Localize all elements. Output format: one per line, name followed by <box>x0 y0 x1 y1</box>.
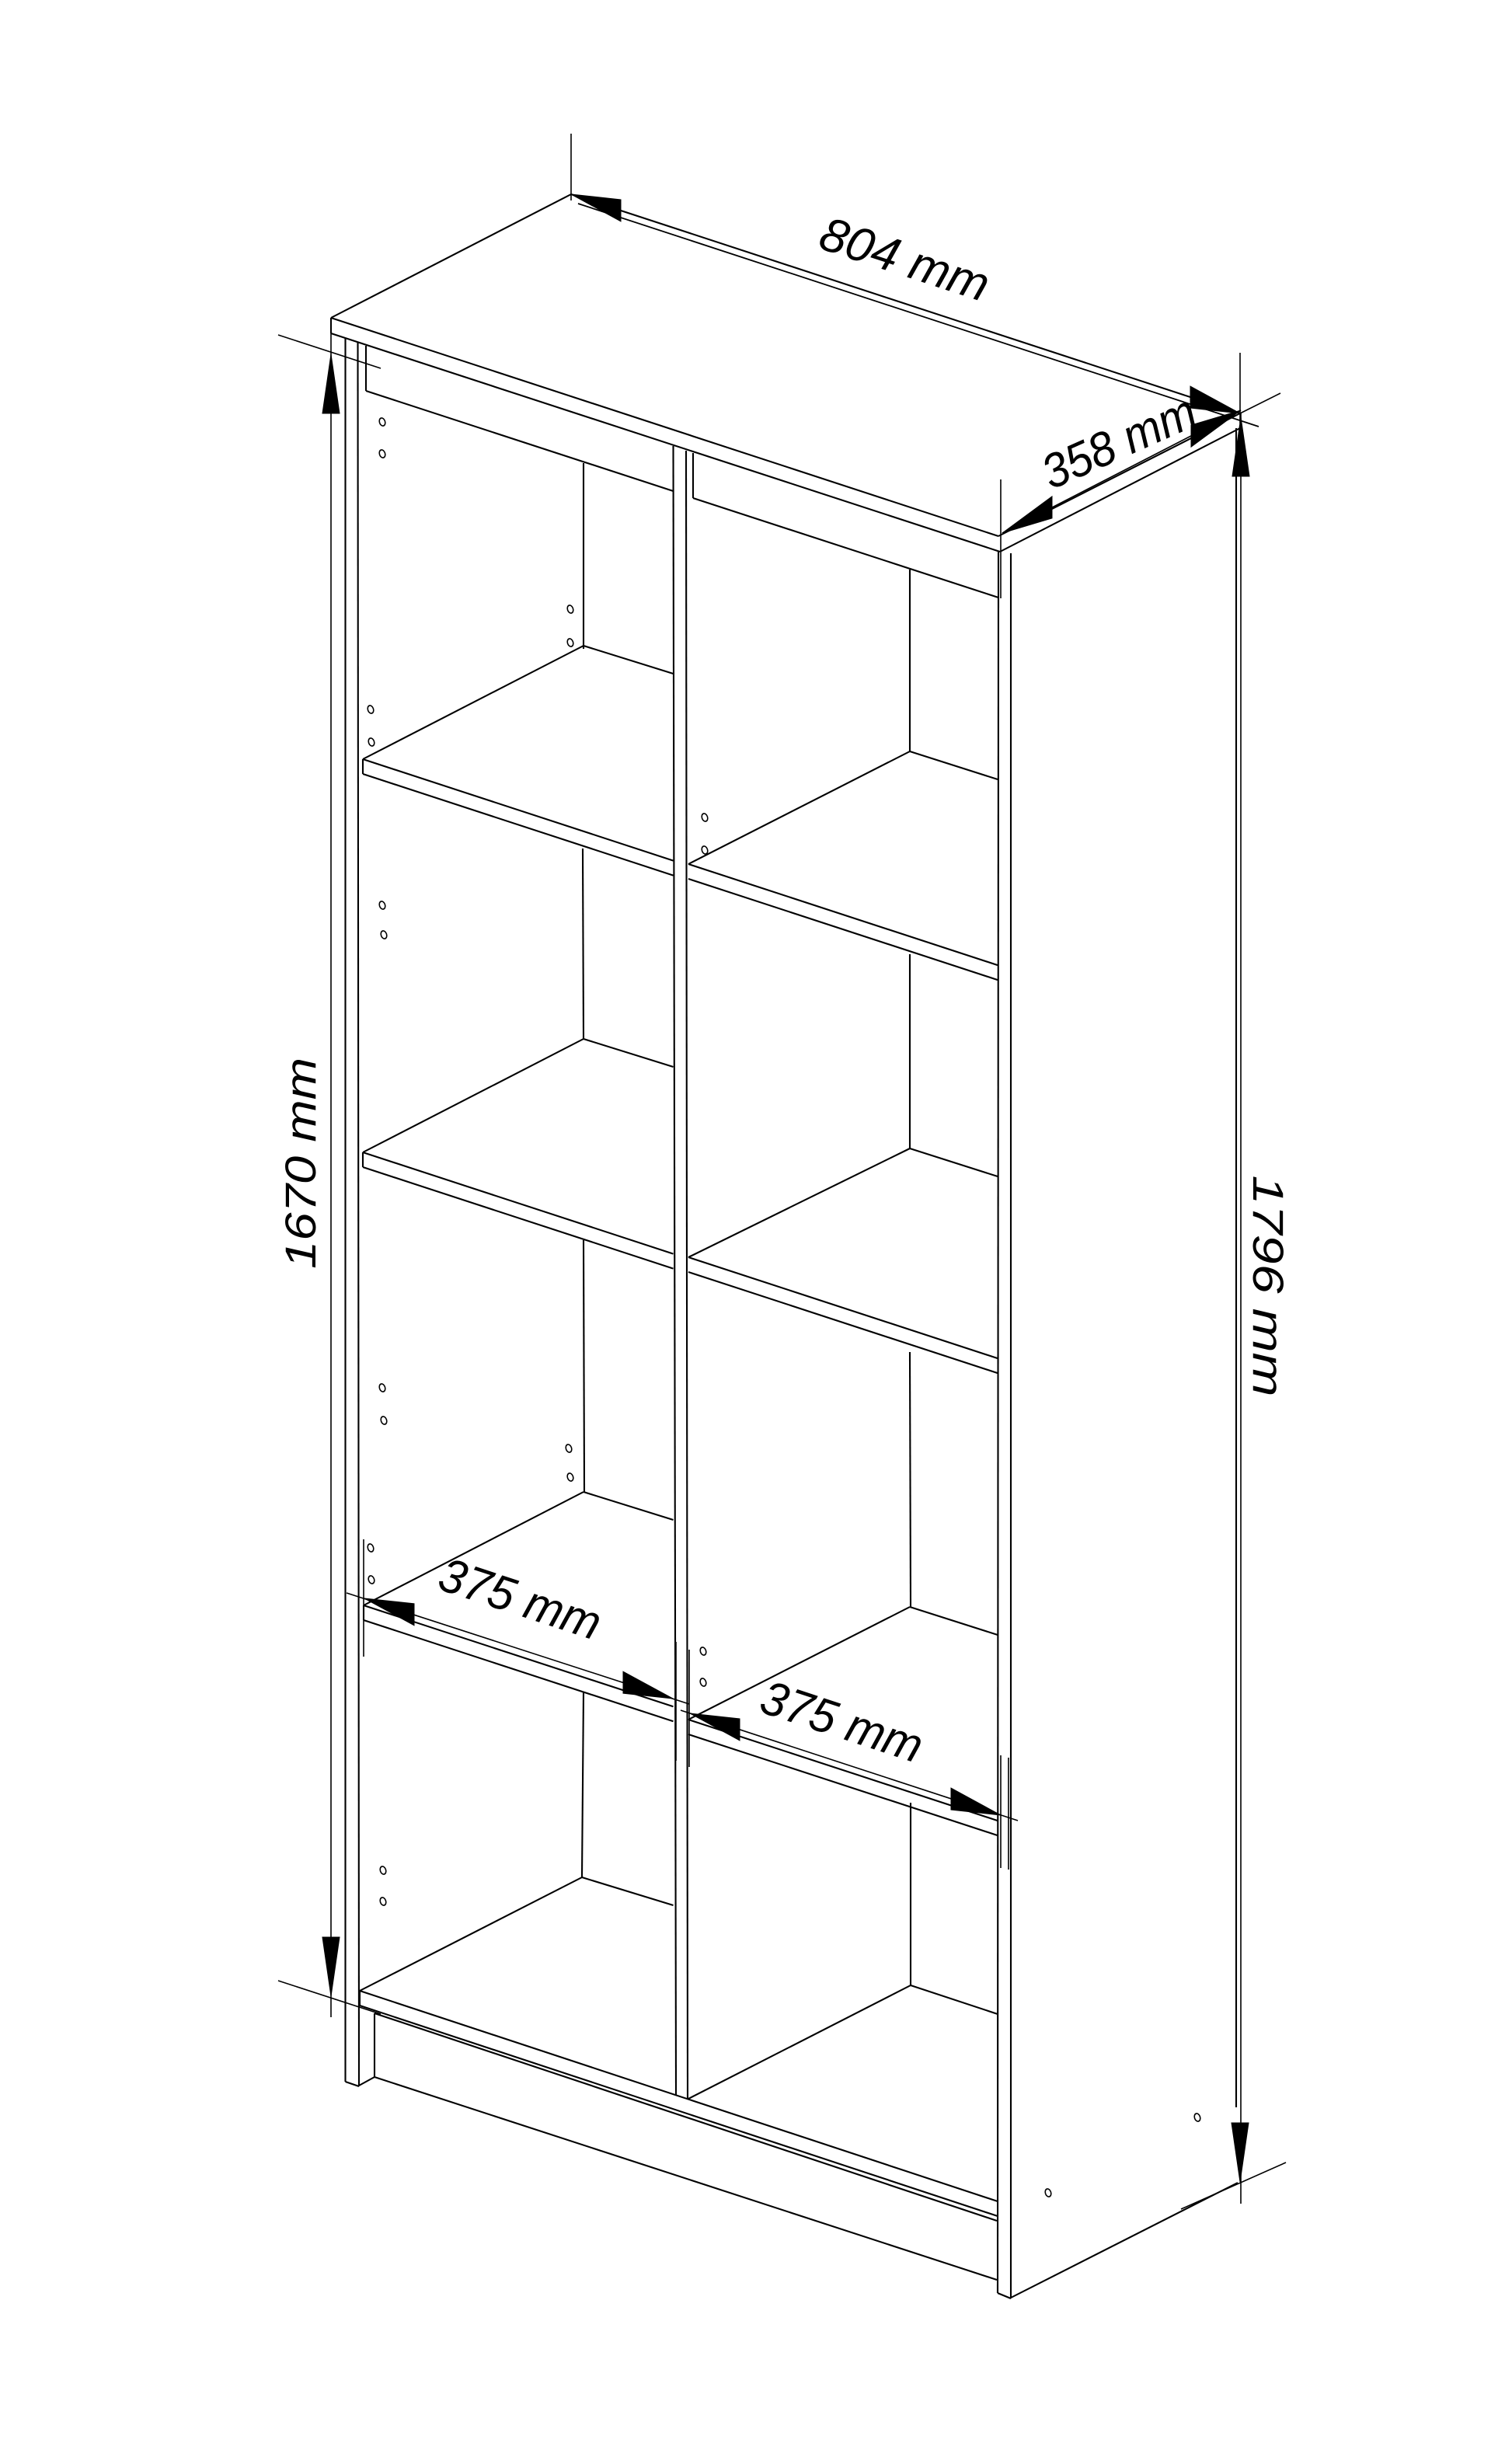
svg-text:1670 mm: 1670 mm <box>276 1058 325 1269</box>
svg-text:1796 mm: 1796 mm <box>1244 1176 1293 1397</box>
